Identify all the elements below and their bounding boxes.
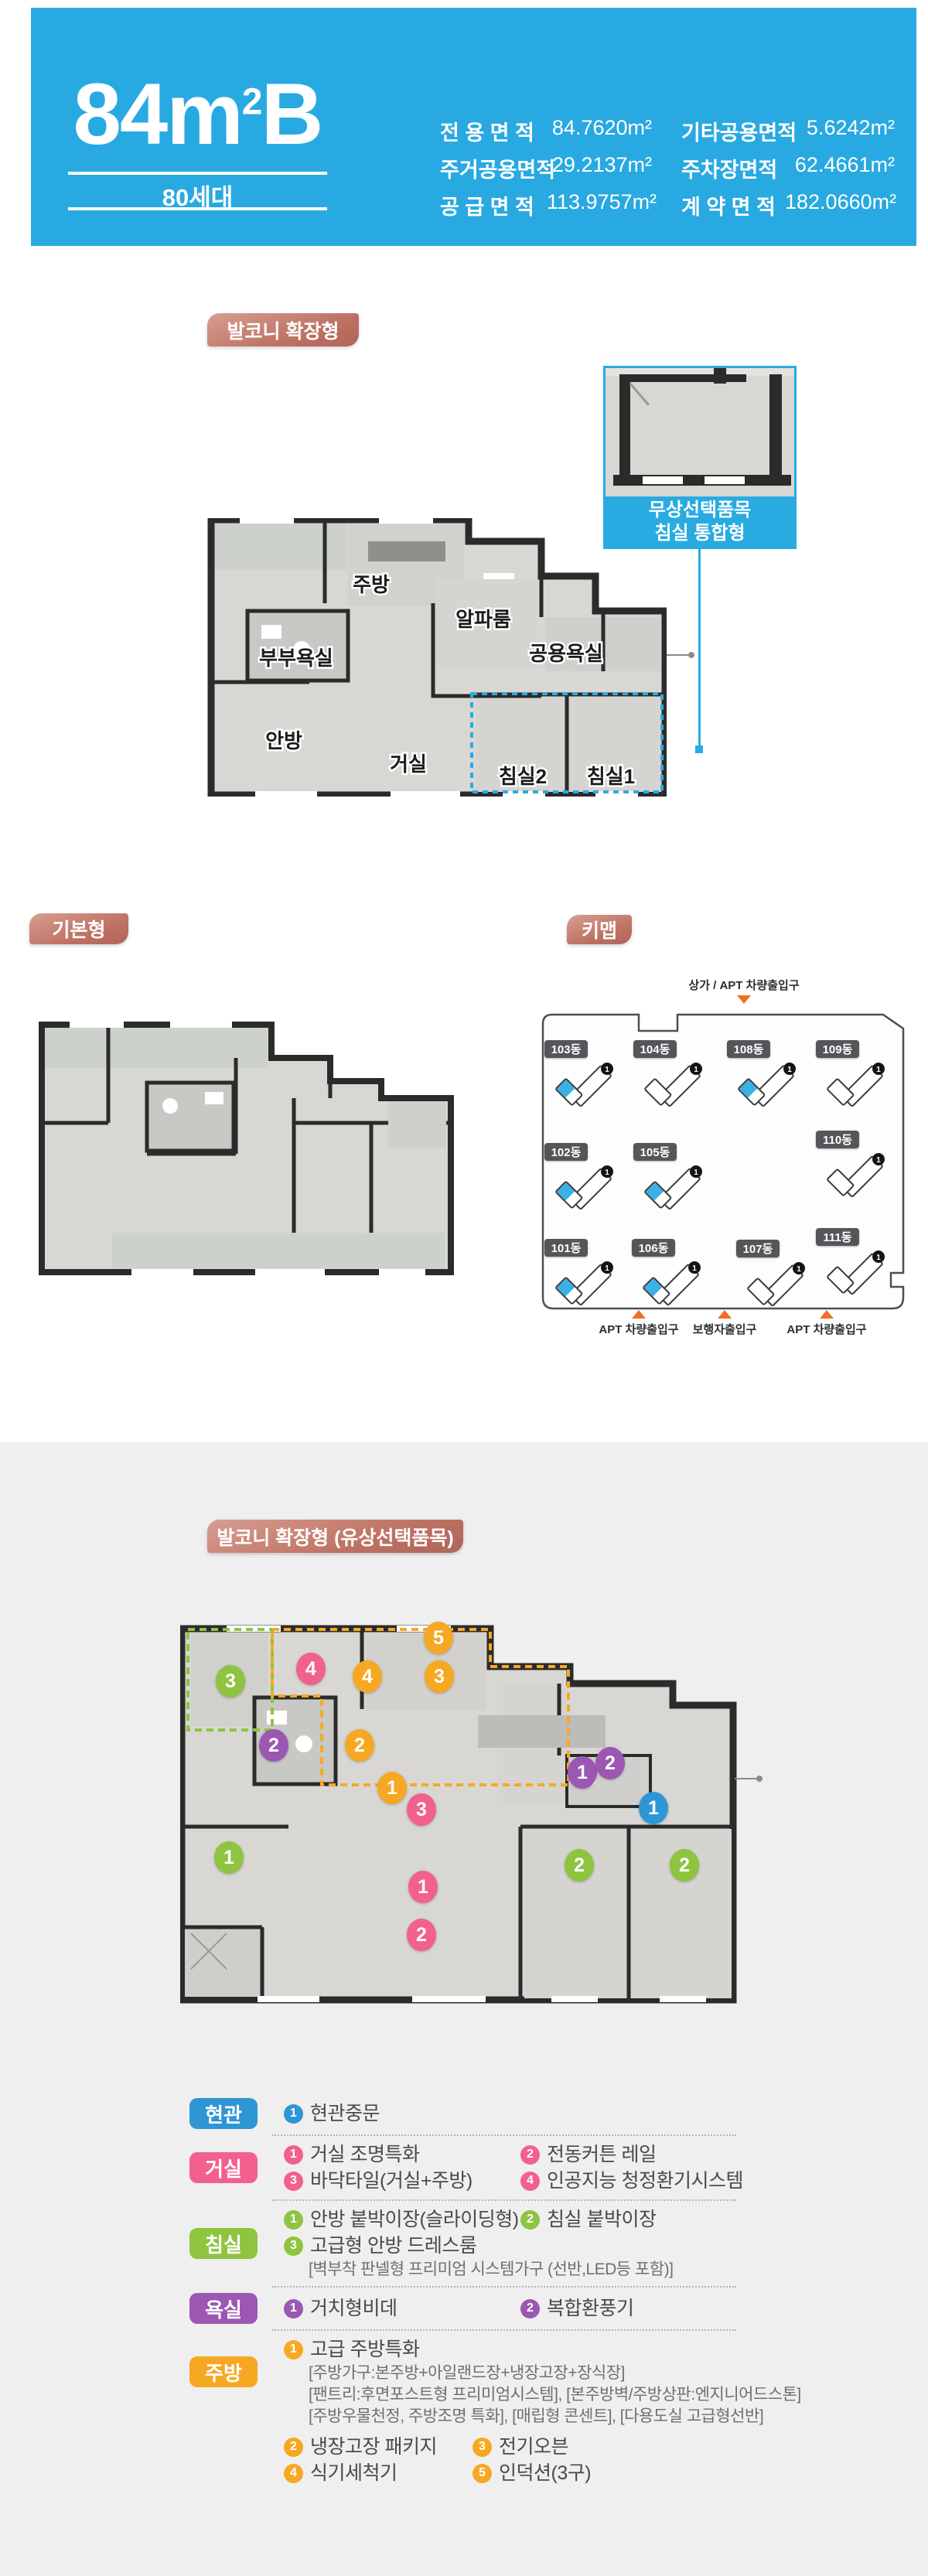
room-label-kitchen: 주방 xyxy=(353,573,390,596)
item-text: 고급 주방특화 xyxy=(310,2336,419,2363)
legend-item: 1 고급 주방특화 xyxy=(284,2336,520,2363)
building-badge-104: 104동 xyxy=(633,1040,677,1058)
room-label-alpha: 알파룸 xyxy=(455,608,511,631)
item-text: 식기세척기 xyxy=(310,2460,397,2486)
marker-entrance-1: 1 xyxy=(639,1792,668,1824)
legend-note: [주방가구:본주방+아일랜드장+냉장고장+장식장] xyxy=(284,2363,801,2384)
item-text: 안방 붙박이장(슬라이딩형) xyxy=(310,2206,519,2233)
marker-kitchen-2: 2 xyxy=(345,1729,374,1762)
marker-bedroom-2-right: 2 xyxy=(670,1849,699,1882)
legend-group-kitchen: 주방 1 고급 주방특화 [주방가구:본주방+아일랜드장+냉장고장+장식장] [… xyxy=(189,2331,731,2492)
item-text: 냉장고장 패키지 xyxy=(310,2434,437,2460)
legend-group-bath: 욕실 1 거치형비데 2 복합환풍기 xyxy=(189,2288,731,2329)
free-option-caption: 무상선택품목 침실 통합형 xyxy=(606,496,794,547)
keymap-site-plan: 1 xyxy=(534,959,920,1315)
area-label: 공 급 면 적 xyxy=(440,190,539,220)
item-number-badge: 3 xyxy=(284,2237,303,2256)
building-badge-102: 102동 xyxy=(544,1143,588,1161)
legend-item: 1 현관중문 xyxy=(284,2100,520,2127)
item-text: 인덕션(3구) xyxy=(499,2460,591,2486)
building-badge-103: 103동 xyxy=(544,1040,588,1058)
item-number-badge: 4 xyxy=(284,2464,303,2483)
legend-note: [벽부착 판넬형 프리미엄 시스템가구 (선반,LED등 포함)] xyxy=(284,2259,731,2281)
building-badge-106: 106동 xyxy=(632,1239,675,1257)
area-value: 62.4661m² xyxy=(785,153,895,183)
area-table: 전 용 면 적 84.7620m² 기타공용면적 5.6242m² 주거공용면적… xyxy=(440,116,895,220)
legend-note: [주방우물천정, 주방조명 특화], [매립형 콘센트], [다용도실 고급형선… xyxy=(284,2406,801,2428)
floorplan-basic xyxy=(39,968,456,1284)
marker-living-1: 1 xyxy=(408,1871,438,1903)
free-option-line2: 침실 통합형 xyxy=(654,522,745,545)
gate-label: APT 차량출입구 xyxy=(786,1321,866,1337)
item-number-badge: 3 xyxy=(284,2172,303,2191)
free-option-callout: 무상선택품목 침실 통합형 xyxy=(603,366,797,549)
title-main: 84m xyxy=(73,66,242,162)
free-option-line1: 무상선택품목 xyxy=(649,499,751,522)
legend-item: 1 거치형비데 xyxy=(284,2295,520,2322)
gate-bottom-right: APT 차량출입구 xyxy=(773,1310,881,1337)
floorplan-balcony-extended: 주방 알파룸 부부욕실 공용욕실 안방 거실 침실2 침실1 xyxy=(193,518,667,797)
room-label-common-bath: 공용욕실 xyxy=(529,642,603,665)
section-label-balcony-extended: 발코니 확장형 xyxy=(207,313,359,346)
room-label-master-bath: 부부욕실 xyxy=(259,647,333,670)
header-band: 84m2B 80세대 전 용 면 적 84.7620m² 기타공용면적 5.62… xyxy=(31,8,916,246)
legend-item: 2 냉장고장 패키지 xyxy=(284,2434,473,2460)
area-label: 계 약 면 적 xyxy=(660,190,777,220)
room-label-living: 거실 xyxy=(390,752,427,776)
item-text: 고급형 안방 드레스룸 xyxy=(310,2233,476,2259)
item-number-badge: 1 xyxy=(284,2299,303,2318)
section-label-basic: 기본형 xyxy=(29,913,128,944)
item-number-badge: 3 xyxy=(473,2438,492,2457)
item-number-badge: 5 xyxy=(473,2464,492,2483)
item-text: 바닥타일(거실+주방) xyxy=(310,2168,473,2194)
item-text: 현관중문 xyxy=(310,2100,380,2127)
item-number-badge: 2 xyxy=(520,2210,540,2230)
flyer-page: 84m2B 80세대 전 용 면 적 84.7620m² 기타공용면적 5.62… xyxy=(0,0,928,2576)
marker-bedroom-1: 1 xyxy=(214,1841,244,1874)
room-label-bed1: 침실1 xyxy=(587,765,635,788)
legend-item: 1 안방 붙박이장(슬라이딩형) xyxy=(284,2206,520,2233)
area-label: 주차장면적 xyxy=(660,153,777,183)
legend-item: 2 침실 붙박이장 xyxy=(520,2206,731,2233)
building-badge-108: 108동 xyxy=(727,1040,770,1058)
area-value: 5.6242m² xyxy=(785,116,895,146)
marker-bath-2-right: 2 xyxy=(595,1747,625,1779)
legend-item: 4 식기세척기 xyxy=(284,2460,473,2486)
area-label: 전 용 면 적 xyxy=(440,116,539,146)
legend-group-living: 거실 1 거실 조명특화 2 전동커튼 레일 3 바닥타일(거실+주방) xyxy=(189,2136,731,2199)
gate-arrow-icon xyxy=(632,1310,646,1319)
legend-badge-entrance: 현관 xyxy=(189,2098,258,2129)
building-badge-109: 109동 xyxy=(816,1040,859,1058)
legend-badge-kitchen: 주방 xyxy=(189,2356,258,2387)
marker-bath-1: 1 xyxy=(568,1756,597,1789)
section-label-keymap: 키맵 xyxy=(567,915,632,944)
item-number-badge: 1 xyxy=(284,2210,303,2230)
legend-item: 4 인공지능 청정환기시스템 xyxy=(520,2168,743,2194)
item-text: 복합환풍기 xyxy=(547,2295,634,2322)
gate-top-arrow-icon xyxy=(737,995,751,1004)
area-value: 29.2137m² xyxy=(547,153,652,183)
gate-arrow-icon xyxy=(820,1310,834,1319)
options-legend: 현관 1 현관중문 거실 1 거실 조명특화 xyxy=(189,2093,731,2492)
marker-bath-2-left: 2 xyxy=(259,1729,288,1762)
area-value: 113.9757m² xyxy=(547,190,652,220)
room-label-master: 안방 xyxy=(265,729,302,752)
item-text: 거치형비데 xyxy=(310,2295,397,2322)
item-text: 침실 붙박이장 xyxy=(547,2206,656,2233)
marker-kitchen-3: 3 xyxy=(425,1660,454,1693)
area-value: 84.7620m² xyxy=(547,116,652,146)
gate-arrow-icon xyxy=(718,1310,732,1319)
legend-badge-living: 거실 xyxy=(189,2152,258,2183)
gate-top: 상가 / APT 차량출입구 xyxy=(690,977,798,1004)
item-number-badge: 2 xyxy=(284,2438,303,2457)
marker-kitchen-5: 5 xyxy=(424,1622,453,1654)
legend-note: [팬트리:후면포스트형 프리미엄시스템], [본주방벽/주방상판:엔지니어드스톤… xyxy=(284,2384,801,2406)
marker-bedroom-2-mid: 2 xyxy=(565,1849,594,1882)
marker-living-2: 2 xyxy=(407,1919,436,1951)
title-tail: B xyxy=(261,66,322,162)
item-number-badge: 1 xyxy=(284,2340,303,2359)
building-badge-110: 110동 xyxy=(816,1131,859,1148)
item-number-badge: 1 xyxy=(284,2145,303,2165)
legend-item: 3 고급형 안방 드레스룸 xyxy=(284,2233,520,2259)
section-label-paid-options: 발코니 확장형 (유상선택품목) xyxy=(207,1520,463,1553)
building-badge-111: 111동 xyxy=(816,1228,859,1246)
merged-bedroom-thumbnail xyxy=(606,368,794,496)
marker-kitchen-1: 1 xyxy=(377,1772,407,1804)
item-number-badge: 2 xyxy=(520,2145,540,2165)
entry-arrow-dot-plan3 xyxy=(756,1776,763,1782)
gate-bottom-center: 보행자출입구 xyxy=(670,1310,779,1337)
legend-group-entrance: 현관 1 현관중문 xyxy=(189,2093,731,2134)
gate-top-label: 상가 / APT 차량출입구 xyxy=(688,977,799,993)
legend-item: 2 복합환풍기 xyxy=(520,2295,731,2322)
area-label: 기타공용면적 xyxy=(660,116,777,146)
legend-item: 3 바닥타일(거실+주방) xyxy=(284,2168,520,2194)
item-number-badge: 2 xyxy=(520,2299,540,2318)
area-value: 182.0660m² xyxy=(785,190,895,220)
room-label-bed2: 침실2 xyxy=(499,765,547,788)
marker-living-3: 3 xyxy=(407,1793,436,1826)
legend-badge-bedroom: 침실 xyxy=(189,2228,258,2259)
item-number-badge: 4 xyxy=(520,2172,540,2191)
units-underline xyxy=(68,207,327,210)
building-badge-107: 107동 xyxy=(736,1240,780,1257)
building-badge-101: 101동 xyxy=(544,1239,588,1257)
legend-group-bedroom: 침실 1 안방 붙박이장(슬라이딩형) 2 침실 붙박이장 3 고급형 안방 xyxy=(189,2201,731,2286)
unit-type-title: 84m2B xyxy=(68,67,327,162)
marker-living-4: 4 xyxy=(296,1653,326,1685)
area-label: 주거공용면적 xyxy=(440,153,539,183)
legend-item: 2 전동커튼 레일 xyxy=(520,2141,743,2168)
building-badge-105: 105동 xyxy=(633,1143,677,1161)
item-text: 거실 조명특화 xyxy=(310,2141,419,2168)
callout-connector-dot xyxy=(695,746,703,753)
site-boundary xyxy=(543,1015,903,1308)
legend-item: 5 인덕션(3구) xyxy=(473,2460,801,2486)
gate-label: 보행자출입구 xyxy=(693,1321,757,1337)
title-sup: 2 xyxy=(242,82,261,123)
item-number-badge: 1 xyxy=(284,2104,303,2124)
item-text: 전기오븐 xyxy=(499,2434,568,2460)
legend-badge-bath: 욕실 xyxy=(189,2293,258,2324)
entry-arrow-dot-plan1 xyxy=(688,652,694,658)
legend-item: 3 전기오븐 xyxy=(473,2434,801,2460)
item-text: 인공지능 청정환기시스템 xyxy=(547,2168,743,2194)
legend-item: 1 거실 조명특화 xyxy=(284,2141,520,2168)
marker-kitchen-4: 4 xyxy=(353,1660,382,1693)
title-underline xyxy=(68,172,327,175)
gate-label: APT 차량출입구 xyxy=(599,1321,678,1337)
marker-bedroom-3: 3 xyxy=(216,1665,245,1697)
callout-connector-line xyxy=(698,549,701,749)
item-text: 전동커튼 레일 xyxy=(547,2141,656,2168)
